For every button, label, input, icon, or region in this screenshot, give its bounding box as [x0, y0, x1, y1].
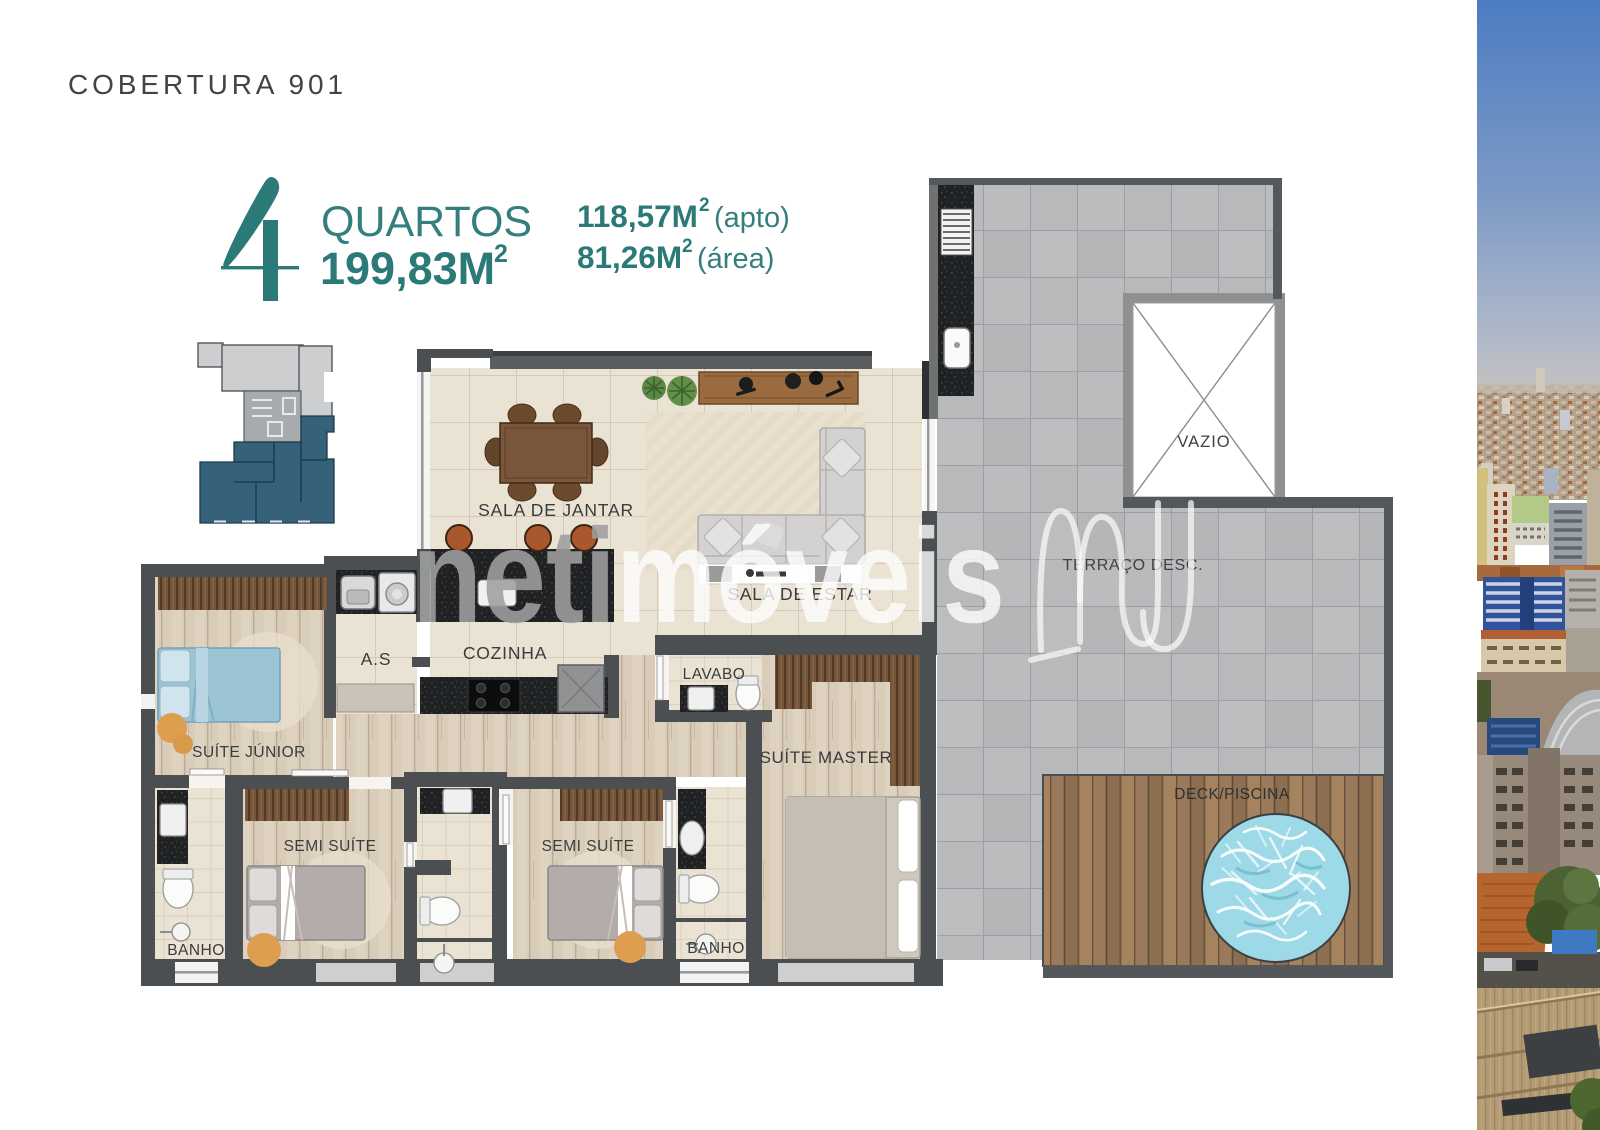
- svg-text:2: 2: [699, 195, 710, 216]
- svg-text:SUÍTE MASTER: SUÍTE MASTER: [760, 748, 893, 767]
- svg-text:A.S: A.S: [361, 649, 392, 669]
- svg-text:DECK/PISCINA: DECK/PISCINA: [1174, 786, 1290, 803]
- svg-text:LAVABO: LAVABO: [683, 666, 746, 683]
- svg-text:199,83M: 199,83M: [320, 243, 495, 294]
- svg-text:2: 2: [682, 236, 693, 257]
- svg-text:SUÍTE JÚNIOR: SUÍTE JÚNIOR: [192, 744, 306, 761]
- svg-text:81,26M: 81,26M: [577, 239, 682, 275]
- svg-text:(área): (área): [697, 243, 774, 275]
- svg-text:COBERTURA 901: COBERTURA 901: [68, 69, 347, 100]
- svg-text:(apto): (apto): [714, 202, 790, 234]
- svg-text:2: 2: [494, 240, 508, 268]
- svg-text:BANHO: BANHO: [687, 940, 745, 957]
- svg-text:118,57M: 118,57M: [577, 198, 698, 234]
- svg-text:SEMI SUÍTE: SEMI SUÍTE: [284, 838, 377, 855]
- svg-text:VAZIO: VAZIO: [1177, 433, 1230, 451]
- svg-text:netimóveis: netimóveis: [412, 502, 1005, 651]
- svg-text:SEMI SUÍTE: SEMI SUÍTE: [542, 838, 635, 855]
- svg-text:QUARTOS: QUARTOS: [321, 198, 532, 246]
- svg-text:BANHO: BANHO: [167, 942, 225, 959]
